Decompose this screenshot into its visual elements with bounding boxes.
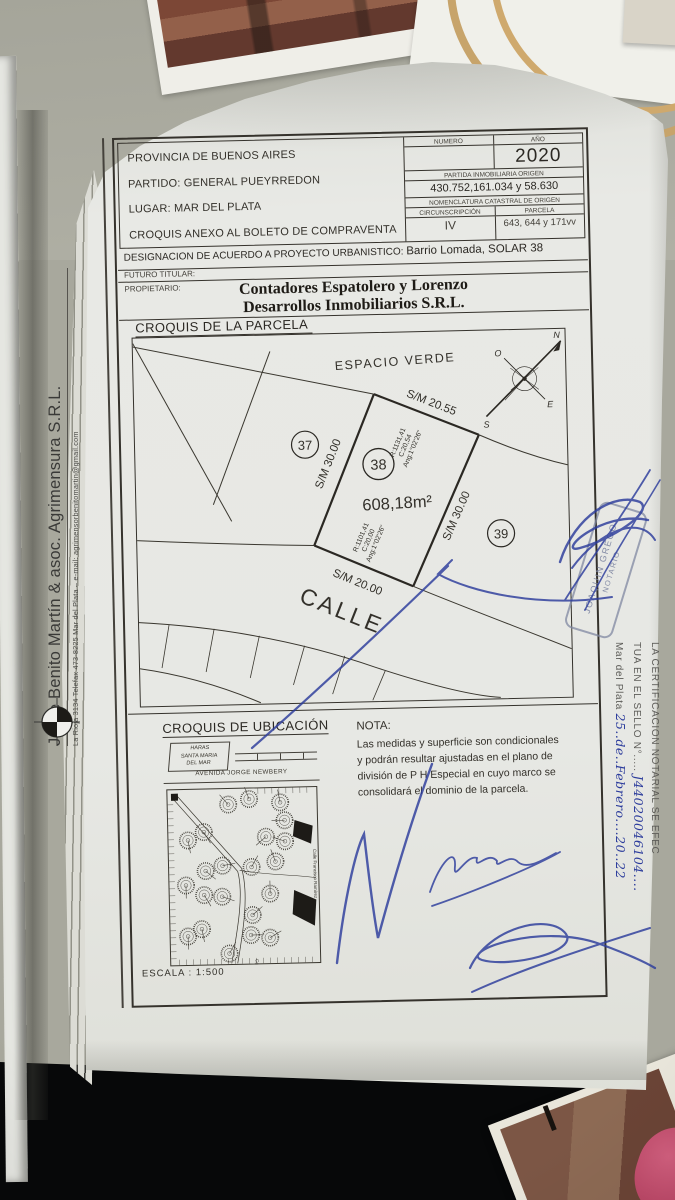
surveyor-logo-icon <box>34 698 80 746</box>
table-row: IV 643, 644 y 171vv <box>406 214 584 241</box>
lot38-boundary <box>311 392 482 589</box>
svg-text:38: 38 <box>370 457 386 473</box>
avenue-line <box>164 779 320 784</box>
sello-number-handwritten: J44020046104.... <box>631 775 646 891</box>
map-street-bottom-label: Calle <box>255 959 260 967</box>
designacion-label: DESIGNACION DE ACUERDO A PROYECTO URBANI… <box>124 246 404 263</box>
nota-label: NOTA: <box>356 720 391 733</box>
compass-n-label: N <box>553 330 560 340</box>
espacio-verde-label: ESPACIO VERDE <box>334 350 455 373</box>
survey-document-frame: PROVINCIA DE BUENOS AIRES PARTIDO: GENER… <box>112 127 608 1008</box>
parcel-sketch-section: CROQUIS DE LA PARCELA <box>119 309 598 715</box>
area-label: 608,18m² <box>362 493 433 515</box>
province-line: PROVINCIA DE BUENOS AIRES <box>127 146 399 164</box>
partido-line: PARTIDO: GENERAL PUEYRREDON <box>128 172 400 190</box>
front-curve-data: R:1101,41 C:20,00 Ang:1°02'26" <box>351 518 388 564</box>
location-and-notes-section: CROQUIS DE UBICACIÓN HARAS SANTA MARIA D… <box>128 703 605 1006</box>
notary-certification-block: LA CERTIFICACION NOTARIAL SE EFEC TUA EN… <box>610 642 662 978</box>
document-header: PROVINCIA DE BUENOS AIRES PARTIDO: GENER… <box>117 132 585 249</box>
surveyor-firm-address: La Rioja 3134 Telefax 473-8225 Mar del P… <box>71 268 80 746</box>
lot-number-37: 37 <box>291 431 319 459</box>
map-dark-areas <box>171 791 317 929</box>
notary-cert-line1: LA CERTIFICACION NOTARIAL SE EFEC <box>646 642 662 978</box>
surveyor-firm-name: Jorge Benito Martín & asoc. Agrimensura … <box>46 268 68 746</box>
numero-value <box>404 145 493 170</box>
beige-object <box>623 0 675 45</box>
notary-cert-line2: TUA EN EL SELLO N°..... J44020046104.... <box>628 642 646 978</box>
parcela-value: 643, 644 y 171vv <box>494 214 584 239</box>
designacion-value: Barrio Lomada, SOLAR 38 <box>406 242 543 257</box>
right-measure-label: S/M 30.00 <box>441 490 473 543</box>
place-prefix: Mar del Plata <box>613 642 624 710</box>
notary-cert-line3: Mar del Plata 25..de..Febrero....20..22 <box>610 642 628 978</box>
rear-curve-data: R:1131,41 C:20,54 Ang:1°02'26" <box>387 423 424 469</box>
lot-number-38: 38 <box>363 448 395 480</box>
circunscripcion-value: IV <box>406 216 495 241</box>
nota-text: Las medidas y superficie son condicional… <box>357 731 590 800</box>
scale-label: ESCALA : 1:500 <box>142 967 225 980</box>
document-type-line: CROQUIS ANEXO AL BOLETO DE COMPRAVENTA <box>129 223 401 241</box>
photo-of-survey-document: PROVINCIA DE BUENOS AIRES PARTIDO: GENER… <box>0 0 675 1200</box>
sello-prefix: TUA EN EL SELLO N°..... <box>631 642 642 772</box>
lot-number-39: 39 <box>487 519 515 547</box>
header-table: NUMERO AÑO 2020 PARTIDA INMOBILIARIA ORI… <box>403 133 584 241</box>
location-sketch-title: CROQUIS DE UBICACIÓN <box>162 717 329 738</box>
compass-e-label: E <box>547 399 554 409</box>
svg-text:39: 39 <box>494 526 509 541</box>
svg-text:37: 37 <box>298 438 313 453</box>
haras-label-box: HARAS SANTA MARIA DEL MAR <box>168 741 230 771</box>
date-handwritten: 25..de..Febrero....20..22 <box>613 714 628 879</box>
map-street-right-label: Calle Francisco Ramírez <box>312 849 318 899</box>
anio-value: 2020 <box>493 143 583 168</box>
compass-o-label: O <box>494 348 501 358</box>
header-identification: PROVINCIA DE BUENOS AIRES PARTIDO: GENER… <box>118 137 405 247</box>
compass-s-label: S <box>483 420 489 430</box>
lugar-line: LUGAR: MAR DEL PLATA <box>129 198 401 216</box>
book-gutter-shadow <box>14 110 48 1120</box>
location-map-drawing: Calle Francisco Ramírez Calle <box>166 785 322 966</box>
parcel-sketch-drawing: ESPACIO VERDE S/M 20.55 R:1131,41 C:20,5… <box>133 329 573 707</box>
futuro-titular-label: FUTURO TITULAR: <box>124 269 195 280</box>
rear-measure-label: S/M 20.55 <box>405 388 458 418</box>
access-road-lines <box>235 752 317 762</box>
surveyor-firm-block: Jorge Benito Martín & asoc. Agrimensura … <box>46 268 80 746</box>
location-map: Calle Francisco Ramírez Calle <box>166 785 322 971</box>
parcel-sketch-frame: ESPACIO VERDE S/M 20.55 R:1131,41 C:20,5… <box>132 328 574 708</box>
